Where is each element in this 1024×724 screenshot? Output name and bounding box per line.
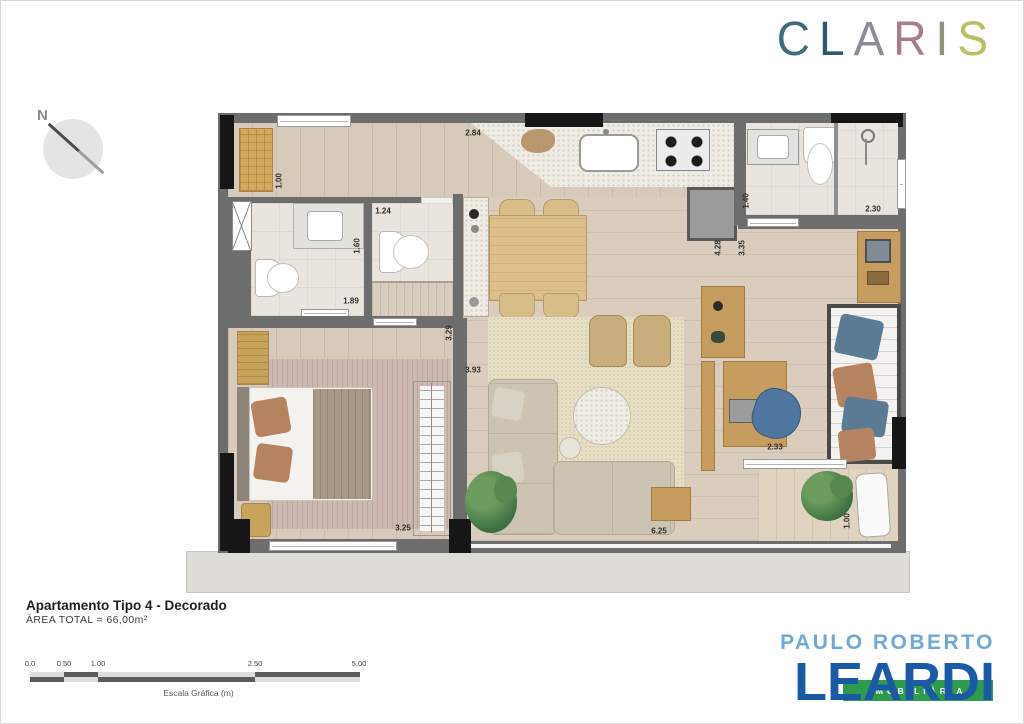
window <box>277 115 351 127</box>
scale-segment <box>30 677 64 682</box>
window-shaft <box>449 519 471 553</box>
scale-tick-label: 2.50 <box>248 659 263 668</box>
scale-segment <box>255 672 360 677</box>
armchair <box>589 315 627 367</box>
plan-area-total: ÁREA TOTAL = 66,00m² <box>26 614 148 626</box>
shower-divider <box>834 123 838 215</box>
sofa-pillow <box>491 387 526 422</box>
scale-tick-label: 1.00 <box>91 659 106 668</box>
island-decor <box>469 209 479 219</box>
entry-bench <box>239 128 273 192</box>
window-shaft <box>220 115 234 189</box>
scale-tick-label: 0.50 <box>57 659 72 668</box>
duct-box <box>232 201 252 251</box>
cabinet-picture <box>865 239 891 263</box>
shelf-unit <box>701 286 745 358</box>
balcony-door <box>743 459 847 469</box>
island-decor <box>471 225 479 233</box>
toilet-bowl <box>807 143 833 185</box>
sideboard <box>701 361 715 471</box>
pillow <box>253 443 294 484</box>
bathroom-divider-wall <box>364 197 372 318</box>
lounger <box>855 472 891 538</box>
shower-head-icon <box>861 129 875 143</box>
graphic-scale: 0.00.501.002.505.00 Escala Gráfica (m) <box>26 659 371 703</box>
kitchen-sink <box>579 134 639 172</box>
wardrobe <box>413 381 451 536</box>
bathroom-wall <box>734 113 746 225</box>
bed-blanket <box>313 389 371 499</box>
window-shaft <box>228 519 250 553</box>
shelf-decor <box>713 301 723 311</box>
dining-chair <box>543 293 579 319</box>
armchair <box>633 315 671 367</box>
bathroom-door <box>747 218 799 227</box>
mid-wall <box>453 194 463 318</box>
bedroom-wall <box>228 316 463 328</box>
cooktop <box>656 129 710 171</box>
bed-headboard <box>237 387 249 501</box>
shower <box>372 281 453 316</box>
scale-caption: Escala Gráfica (m) <box>26 688 371 698</box>
scale-tick-label: 0.0 <box>25 659 35 668</box>
cabinet-drawer <box>867 271 889 285</box>
toilet-bowl <box>267 263 299 293</box>
shower-line <box>865 139 867 165</box>
window-shaft <box>892 417 906 469</box>
daybed-pillow-tan <box>837 427 876 463</box>
faucet-icon <box>603 129 609 135</box>
bedroom-door <box>373 318 417 326</box>
toilet-bowl <box>393 235 429 269</box>
counter-decor <box>521 129 555 153</box>
plant <box>801 471 853 521</box>
island-decor <box>469 297 479 307</box>
refrigerator <box>687 187 737 241</box>
floor-plan: 1.002.841.402.301.241.601.893.293.934.28… <box>1 1 1024 724</box>
balcony-window <box>269 541 397 551</box>
leardi-logo-main-text: LEARDI <box>695 657 995 707</box>
dining-chair <box>499 293 535 319</box>
sink-basin <box>307 211 343 241</box>
scale-segment <box>98 677 255 682</box>
terrace <box>186 551 910 593</box>
side-table <box>651 487 691 521</box>
plant <box>465 471 517 533</box>
scale-segment <box>64 672 98 677</box>
wardrobe-rail <box>431 383 432 533</box>
bottom-window-sliver <box>471 544 891 548</box>
dining-table <box>489 215 587 301</box>
coffee-table <box>573 387 631 445</box>
plan-title: Apartamento Tipo 4 - Decorado <box>26 598 227 613</box>
floorplan-page: CLARIS N <box>0 0 1024 724</box>
shelf-decor <box>711 331 725 343</box>
sink-basin <box>757 135 789 159</box>
pillow <box>250 396 292 438</box>
window-shaft <box>525 113 603 127</box>
leardi-logo: PAULO ROBERTO IMOBILIÁRIA LEARDI <box>695 631 995 715</box>
side-table-small <box>559 437 581 459</box>
window <box>897 159 906 209</box>
scale-tick-label: 5.00 <box>352 659 367 668</box>
bedroom-bench <box>237 331 269 385</box>
